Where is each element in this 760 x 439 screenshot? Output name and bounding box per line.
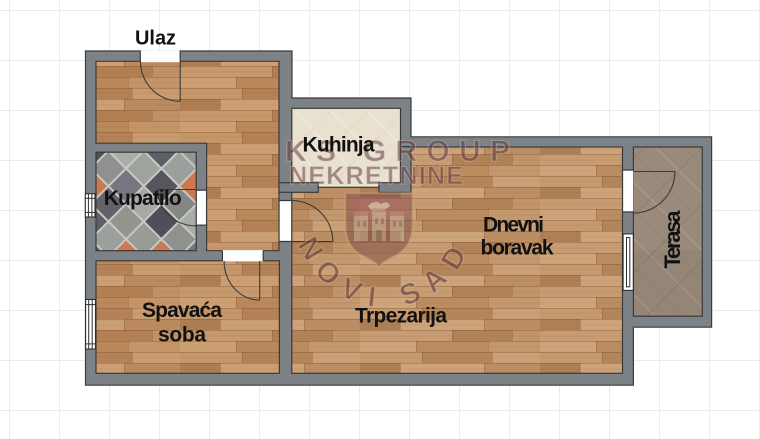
svg-text:Trpezarija: Trpezarija	[355, 305, 447, 328]
svg-text:Dnevni: Dnevni	[483, 214, 544, 237]
svg-text:soba: soba	[158, 324, 206, 347]
svg-text:Ulaz: Ulaz	[135, 28, 176, 50]
svg-text:Kuhinja: Kuhinja	[303, 134, 375, 157]
svg-text:boravak: boravak	[481, 237, 554, 260]
svg-text:NEKRETNINE: NEKRETNINE	[289, 162, 465, 190]
svg-text:Kupatilo: Kupatilo	[104, 187, 182, 210]
svg-text:Terasa: Terasa	[660, 210, 685, 269]
svg-text:Spavaća: Spavaća	[142, 299, 222, 322]
